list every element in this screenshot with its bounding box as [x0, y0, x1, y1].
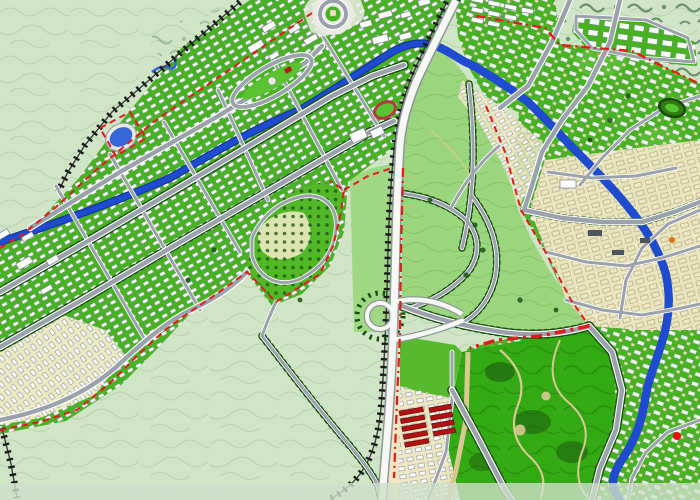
south-park — [448, 328, 615, 500]
orange-dot-marker — [669, 237, 675, 243]
bottom-terrain-band — [0, 483, 700, 500]
red-dot-marker — [673, 432, 681, 440]
master-plan-map — [0, 0, 700, 500]
map-canvas — [0, 0, 700, 500]
